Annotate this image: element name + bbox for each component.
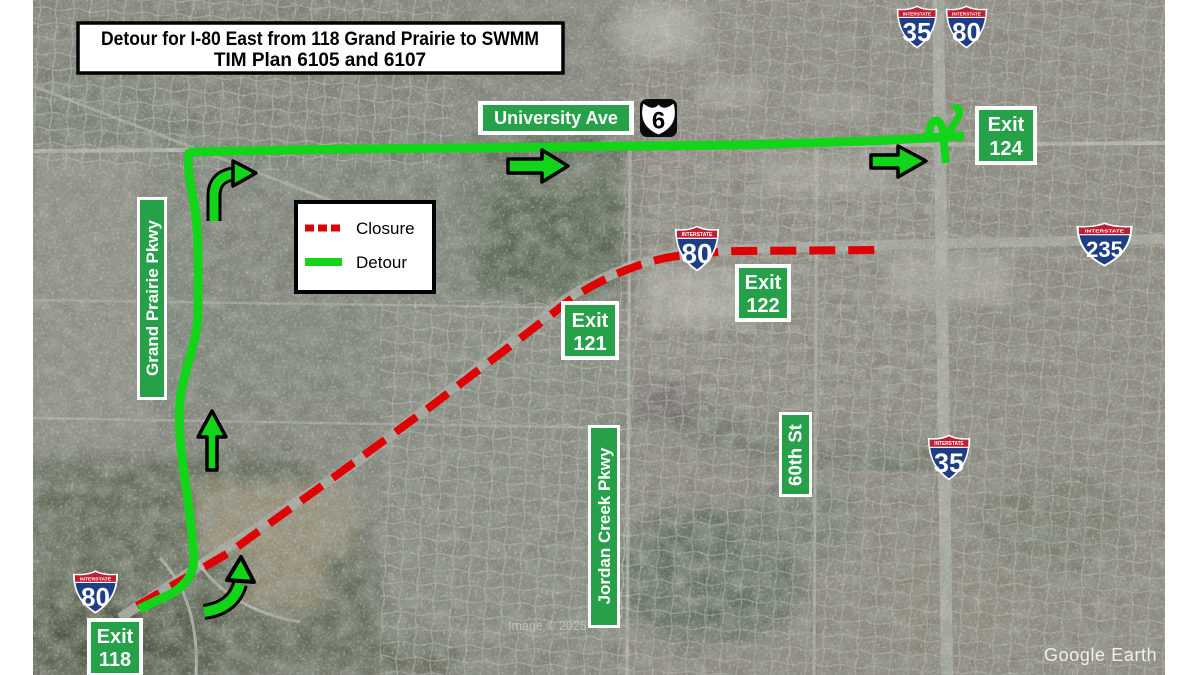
svg-text:6: 6 bbox=[652, 108, 665, 135]
svg-text:Grand Prairie Pkwy: Grand Prairie Pkwy bbox=[143, 220, 162, 376]
svg-text:Exit: Exit bbox=[988, 114, 1025, 136]
svg-text:University Ave: University Ave bbox=[494, 108, 618, 128]
svg-text:Google Earth: Google Earth bbox=[1044, 645, 1157, 665]
svg-text:122: 122 bbox=[746, 295, 779, 317]
svg-text:TIM Plan 6105 and 6107: TIM Plan 6105 and 6107 bbox=[214, 50, 426, 71]
svg-text:Exit: Exit bbox=[745, 272, 782, 294]
svg-text:235: 235 bbox=[1086, 237, 1123, 262]
svg-text:60th St: 60th St bbox=[785, 424, 806, 486]
svg-text:Jordan Creek Pkwy: Jordan Creek Pkwy bbox=[595, 447, 614, 604]
svg-text:Exit: Exit bbox=[97, 626, 134, 648]
svg-text:35: 35 bbox=[934, 448, 964, 478]
svg-text:Closure: Closure bbox=[356, 219, 415, 238]
svg-text:80: 80 bbox=[681, 238, 712, 269]
svg-text:Detour: Detour bbox=[356, 253, 407, 272]
svg-text:80: 80 bbox=[952, 17, 981, 47]
svg-text:80: 80 bbox=[81, 582, 110, 612]
svg-text:118: 118 bbox=[99, 649, 131, 671]
svg-text:35: 35 bbox=[903, 17, 932, 47]
svg-text:121: 121 bbox=[573, 333, 606, 355]
svg-text:Image © 2025: Image © 2025 bbox=[508, 619, 587, 633]
svg-text:Detour for I-80 East from 118: Detour for I-80 East from 118 Grand Prai… bbox=[101, 29, 539, 50]
svg-text:124: 124 bbox=[989, 138, 1023, 160]
svg-text:Exit: Exit bbox=[572, 310, 609, 332]
